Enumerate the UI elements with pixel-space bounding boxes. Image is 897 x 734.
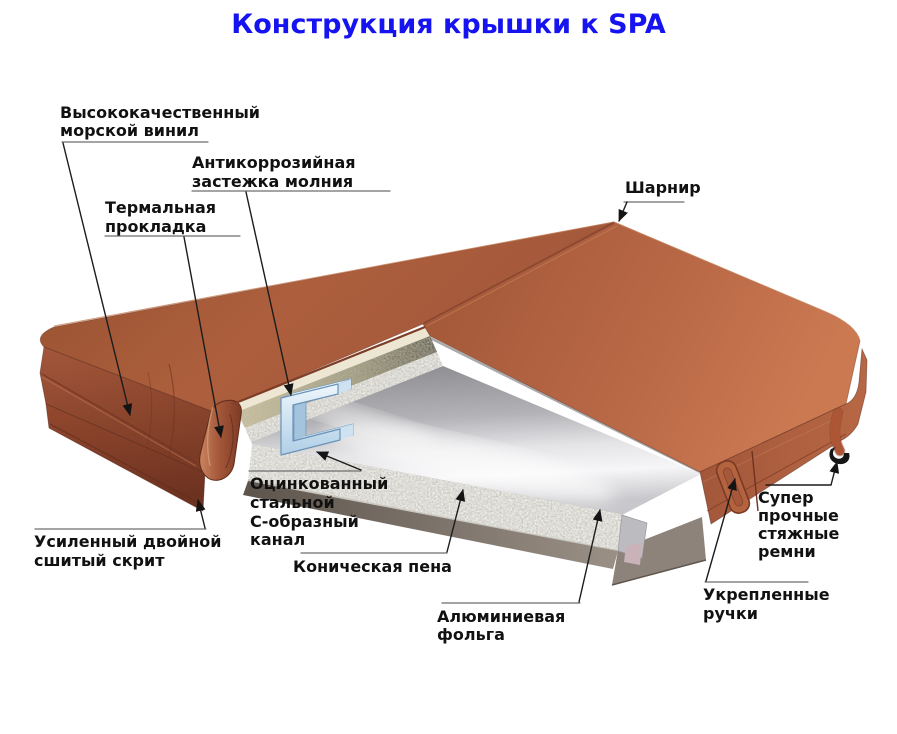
label-skirt: Усиленный двойной сшитый скрит xyxy=(34,500,221,570)
label-zipper-line2: застежка молния xyxy=(192,172,353,191)
label-straps-line1: Супер xyxy=(758,488,814,507)
tie-down-strap-ribbon xyxy=(835,413,840,451)
label-straps-line2: прочные xyxy=(758,506,839,525)
label-zipper-line1: Антикоррозийная xyxy=(192,153,356,172)
label-channel-line2: стальной xyxy=(250,493,335,512)
label-straps-line4: ремни xyxy=(758,542,816,561)
label-hinge-line1: Шарнир xyxy=(625,178,701,197)
spa-cover-diagram: Высококачественный морской винил Антикор… xyxy=(0,0,897,734)
label-channel-line1: Оцинкованный xyxy=(250,474,388,493)
label-handles-line2: ручки xyxy=(703,604,758,623)
label-foil-line1: Алюминиевая xyxy=(437,607,565,626)
label-channel-line4: канал xyxy=(250,530,305,549)
cover-illustration xyxy=(40,222,867,585)
label-vinyl-line1: Высококачественный xyxy=(60,103,260,122)
label-thermal-line1: Термальная xyxy=(105,198,216,217)
label-skirt-line1: Усиленный двойной xyxy=(34,532,221,551)
label-hinge: Шарнир xyxy=(619,178,701,221)
label-straps-line3: стяжные xyxy=(758,524,839,543)
spa-cover-construction-page: Конструкция крышки к SPA xyxy=(0,0,897,734)
label-thermal-line2: прокладка xyxy=(105,217,206,236)
label-handles-line1: Укрепленные xyxy=(703,585,830,604)
label-skirt-line2: сшитый скрит xyxy=(34,551,165,570)
label-vinyl-line2: морской винил xyxy=(60,121,199,140)
label-channel-line3: С-образный xyxy=(250,512,359,531)
label-foil-line2: фольга xyxy=(437,625,505,644)
leader-line xyxy=(619,202,627,221)
label-foam-line1: Коническая пена xyxy=(293,557,452,576)
